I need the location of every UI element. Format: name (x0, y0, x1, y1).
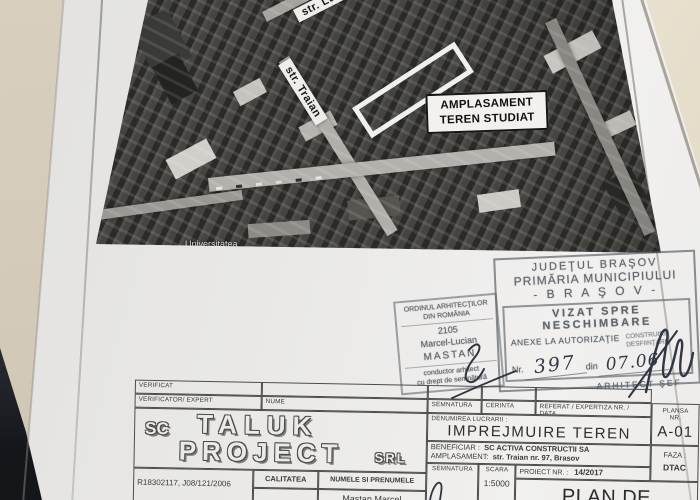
site-callout-line2: TEREN STUDIAT (429, 110, 545, 129)
semnatura-label: SEMNATURA (432, 401, 473, 409)
cerinta-label: CERINTA (486, 402, 515, 410)
faza-value: DTAC (654, 463, 694, 473)
cerinta-cell: CERINTA (481, 400, 535, 415)
title-block: VERIFICAT VERIFICATOR/ EXPERT NUME SEMNA… (131, 376, 700, 500)
din-label: din (586, 361, 598, 372)
faza-cell: FAZA : DTAC (650, 445, 699, 482)
company-logo-cell: SC TALUK PROJECT SRL (133, 408, 427, 473)
scara-label: SCARA (482, 466, 511, 474)
faza-label: FAZA : (655, 451, 695, 460)
plansa-value: A-01 (655, 424, 695, 442)
scara-value: 1:5000 (482, 479, 511, 489)
partial-name: Mastan Marcel (342, 493, 401, 500)
calitatea-value-cell (253, 488, 318, 500)
empty-cell (482, 386, 536, 401)
handwritten-date: 07.06 (597, 349, 668, 377)
plan-title-cell: PLAN DE INCADRARE (515, 479, 699, 500)
plansa-cell: PLANSA NR. A-01 (651, 403, 700, 446)
denumirea-value: IMPREJMUIRE TEREN (431, 422, 647, 443)
company-sc: SC (145, 419, 169, 439)
semnatura-bottom-cell: SEMNATURA (426, 463, 479, 500)
proiect-label: PROIECT NR. : (519, 469, 568, 477)
nr-label: Nr. (512, 364, 524, 374)
company-srl: SRL (374, 451, 406, 467)
plan-title: PLAN DE INCADRARE (518, 485, 694, 500)
semnatura2-label: SEMNATURA (432, 465, 473, 473)
verificat-label: VERIFICAT (139, 382, 173, 390)
plansa-label2: NR. (655, 414, 695, 422)
handwritten-number: 397 (522, 350, 586, 380)
empty-cell (428, 385, 482, 400)
amplasament-label: AMPLASAMENT: (431, 451, 489, 461)
numele-label: NUMELE SI PRENUMELE (330, 476, 414, 485)
numele-cell: NUMELE SI PRENUMELE (318, 471, 426, 491)
site-callout-box: AMPLASAMENT TEREN STUDIAT (425, 90, 548, 134)
denumirea-cell: DENUMIREA LUCRARII : IMPREJMUIRE TEREN (427, 413, 651, 445)
company-name-project: PROJECT (178, 436, 343, 469)
vizat-text: VIZAT SPRE NESCHIMBARE (509, 302, 684, 334)
verificator-label: VERIFICATOR/ EXPERT (139, 396, 213, 404)
company-registration-cell: R18302117, J08/121/2006 (133, 468, 254, 500)
semnatura-cell: SEMNATURA (427, 399, 481, 414)
vizat-box: VIZAT SPRE NESCHIMBARE ANEXE LA AUTORIZA… (502, 298, 693, 382)
photo-of-site-plan-document: { "map": { "street_label_1": "str. Lunii… (0, 0, 700, 500)
nume-label: NUME (266, 398, 285, 405)
anexe-label: ANEXE LA AUTORIZAŢIE (511, 333, 620, 348)
calitatea-cell: CALITATEA (253, 470, 318, 489)
city-hall-stamp: JUDEŢUL BRAŞOV PRIMĂRIA MUNICIPIULUI - B… (493, 250, 700, 393)
company-registration: R18302117, J08/121/2006 (137, 478, 231, 489)
scara-cell: SCARA 1:5000 (478, 464, 516, 500)
proiect-value: 14/2017 (574, 468, 603, 478)
calitatea-label: CALITATEA (265, 474, 307, 484)
partial-name-cell: Mastan Marcel (318, 489, 426, 500)
construire-desfiintare: CONSTRUIRE DESFIINŢARE (625, 330, 669, 349)
amplasament-value: str. Traian nr. 97, Brasov (493, 452, 580, 463)
